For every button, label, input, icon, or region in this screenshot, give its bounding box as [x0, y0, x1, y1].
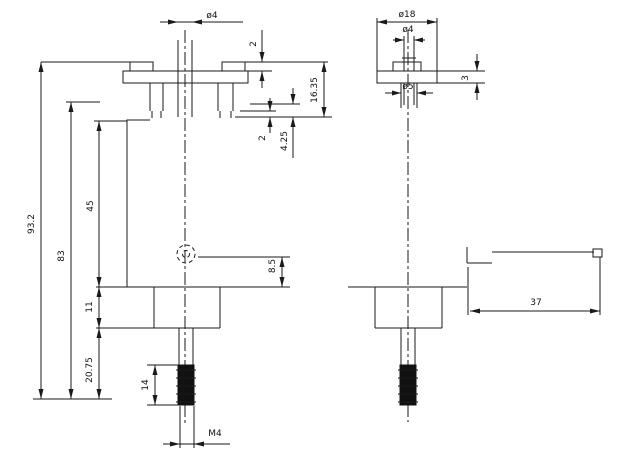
- dim-front-base-height: 11: [85, 287, 102, 328]
- dim-label-front-total-height: 93.2: [27, 214, 37, 234]
- dim-label-front-pin-tip: 2: [258, 135, 268, 141]
- dim-front-total-height: 93.2: [27, 62, 44, 399]
- dim-front-hole-offset: 8.5: [268, 257, 285, 287]
- dim-label-front-head-depth: 16.35: [310, 77, 320, 103]
- dim-front-thread-spec: M4: [163, 429, 230, 447]
- dim-label-lever-length: 37: [530, 298, 541, 308]
- front-right-tab: [222, 62, 245, 71]
- dim-label-front-hole-offset: 8.5: [268, 259, 278, 273]
- engineering-drawing: ø4 2 16.35 4.25 2 8.5: [0, 0, 620, 458]
- dim-label-front-pin-length: 4.25: [280, 131, 290, 151]
- dim-label-front-lower-height: 20.75: [85, 357, 95, 383]
- dim-label-front-base-height: 11: [85, 301, 95, 312]
- dim-front-height-to-bottom: 83: [57, 102, 74, 399]
- front-base-block: [96, 287, 290, 328]
- dim-front-body-height: 45: [86, 121, 102, 287]
- front-threaded-stud: [176, 328, 196, 405]
- dim-label-front-body-height: 45: [86, 200, 96, 211]
- dim-side-flange-thickness: 3: [461, 54, 480, 100]
- front-body: [127, 120, 150, 287]
- dim-side-top-diameter: ø4: [393, 25, 425, 43]
- side-tab: [393, 62, 421, 71]
- dim-label-side-stem-diameter: ø5: [402, 82, 413, 92]
- dim-front-top-diameter: ø4: [160, 11, 243, 25]
- dim-front-thread-length: 14: [141, 365, 158, 405]
- dim-label-front-thread-length: 14: [141, 379, 151, 391]
- dim-front-head-depth: 16.35: [310, 62, 327, 117]
- dim-label-side-flange-diameter: ø18: [399, 10, 416, 20]
- dim-side-flange-diameter: ø18: [377, 10, 437, 25]
- dim-label-front-top-diameter: ø4: [206, 11, 218, 21]
- dim-label-side-flange-thickness: 3: [461, 75, 471, 81]
- dim-label-front-cap-height: 2: [249, 41, 259, 47]
- dim-side-stem-diameter: ø5: [385, 82, 433, 96]
- front-hidden-hole: [177, 245, 195, 263]
- dim-front-cap-height: 2: [249, 30, 265, 88]
- dim-front-pin-length: 4.25: [280, 88, 296, 158]
- lever-end-block: [593, 249, 602, 257]
- dim-lever-length: 37: [470, 298, 600, 314]
- dim-label-front-thread-spec: M4: [208, 429, 222, 439]
- front-left-tab: [130, 62, 153, 71]
- dim-label-side-top-diameter: ø4: [402, 25, 414, 35]
- front-view-part: [96, 30, 290, 425]
- dim-label-front-height-to-bottom: 83: [57, 250, 67, 261]
- lever-detail: [467, 247, 602, 263]
- dim-front-lower-height: 20.75: [85, 328, 102, 399]
